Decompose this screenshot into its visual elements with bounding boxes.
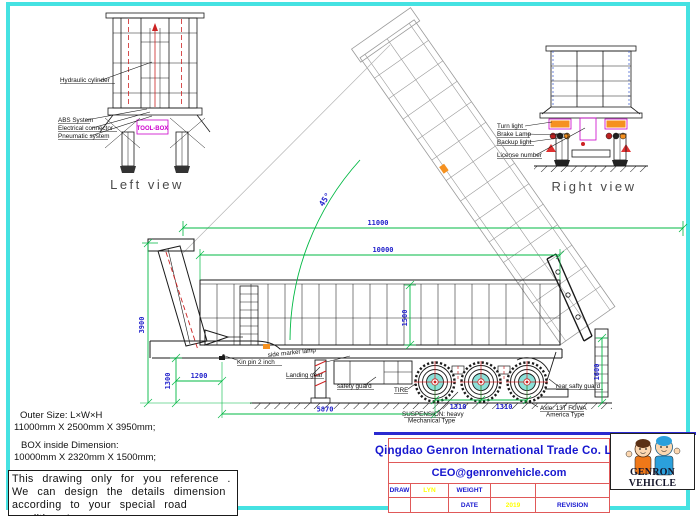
dim-overall-length: 11000: [367, 219, 388, 227]
empty-cell-3: [389, 498, 411, 512]
dim-overall-height: 3900: [138, 317, 146, 334]
date-label-cell: DATE: [449, 498, 491, 512]
tail-lamp-right: [607, 121, 626, 128]
logo-text: GENRON VEHICLE: [611, 467, 694, 489]
disclaimer-note: This drawing only for you reference . We…: [8, 470, 238, 516]
dim-axle-spacing-1: 1310: [450, 403, 467, 411]
disclaimer-line-1: This drawing only for you reference .: [12, 473, 234, 486]
outer-size-value: 11000mm X 2500mm X 3950mm;: [14, 422, 155, 433]
weight-label-cell: WEIGHT: [449, 484, 491, 498]
outer-size-label: Outer Size: L×W×H: [20, 410, 102, 421]
box-size-value: 10000mm X 2320mm X 1500mm;: [14, 452, 156, 463]
title-block: Qingdao Genron International Trade Co. L…: [388, 438, 610, 513]
disclaimer-line-2: We can design the details dimension: [12, 486, 234, 499]
turn-light-label: Turn light: [497, 123, 523, 130]
company-email: CEO@genronvehicle.com: [389, 463, 609, 484]
tip-trajectory-line: [183, 45, 390, 253]
rear-safety-guard-label: rear safty guard: [556, 383, 601, 390]
landing-gear-label: Landing gear: [286, 372, 323, 379]
revision-label-cell: REVISION: [536, 498, 609, 512]
draw-value-cell: LYN: [411, 484, 449, 498]
empty-cell-4: [411, 498, 449, 512]
date-value-cell: 2019: [491, 498, 536, 512]
dim-kingpin-offset: 1200: [191, 372, 208, 380]
king-pin-label: Kin pin 2 inch: [237, 359, 275, 366]
electrical-connector-label: Electrical connector: [58, 125, 113, 132]
drawing-sheet: TOOL-BOX Hydraulic cylinder ABS System E…: [0, 0, 700, 516]
empty-cell-1: [491, 484, 536, 498]
company-name: Qingdao Genron International Trade Co. L…: [389, 439, 609, 463]
rear-hinge-arms: [547, 254, 592, 341]
side-marker-label: side marker lamp: [267, 347, 316, 359]
box-size-label: BOX inside Dimension:: [21, 440, 119, 451]
company-logo: GENRON VEHICLE: [610, 433, 695, 490]
dim-rear-height: 1600: [593, 364, 601, 381]
tire-label: TIRE: [394, 387, 408, 394]
dim-box-length: 10000: [372, 246, 393, 254]
hydraulic-cylinder-label: Hydraulic cylinder: [60, 77, 110, 84]
dim-chassis-height: 1300: [164, 373, 172, 390]
dim-axle-spacing-2: 1310: [496, 403, 513, 411]
suspension-label-2: Mechanical Type: [408, 418, 456, 425]
left-view-drawing: [58, 13, 210, 173]
side-safety-guard: [334, 361, 412, 384]
toolbox-label: TOOL-BOX: [137, 126, 169, 132]
left-view-caption: Left view: [110, 177, 184, 192]
title-block-grid: DRAW LYN WEIGHT DATE 2019 REVISION: [389, 484, 609, 512]
side-marker-lamp: [263, 344, 270, 349]
dim-box-inner-height: 1500: [401, 310, 409, 327]
dim-kingpin-to-axle: 5870: [317, 406, 334, 414]
axle-label-2: America Type: [546, 412, 585, 419]
tipped-body: [352, 8, 619, 346]
right-view-caption: Right view: [552, 179, 637, 194]
brake-lamp-label: Brake Lamp: [497, 131, 531, 138]
tail-lamp-left: [551, 121, 570, 128]
dimension-lines: [140, 160, 687, 418]
disclaimer-line-3: according to your special road condition…: [12, 499, 234, 516]
draw-label-cell: DRAW: [389, 484, 411, 498]
pneumatic-system-label: Pneumatic system: [58, 133, 109, 140]
safety-guard-label: safety guard: [337, 383, 372, 390]
empty-cell-2: [536, 484, 609, 498]
abs-system-label: ABS System: [58, 117, 93, 124]
